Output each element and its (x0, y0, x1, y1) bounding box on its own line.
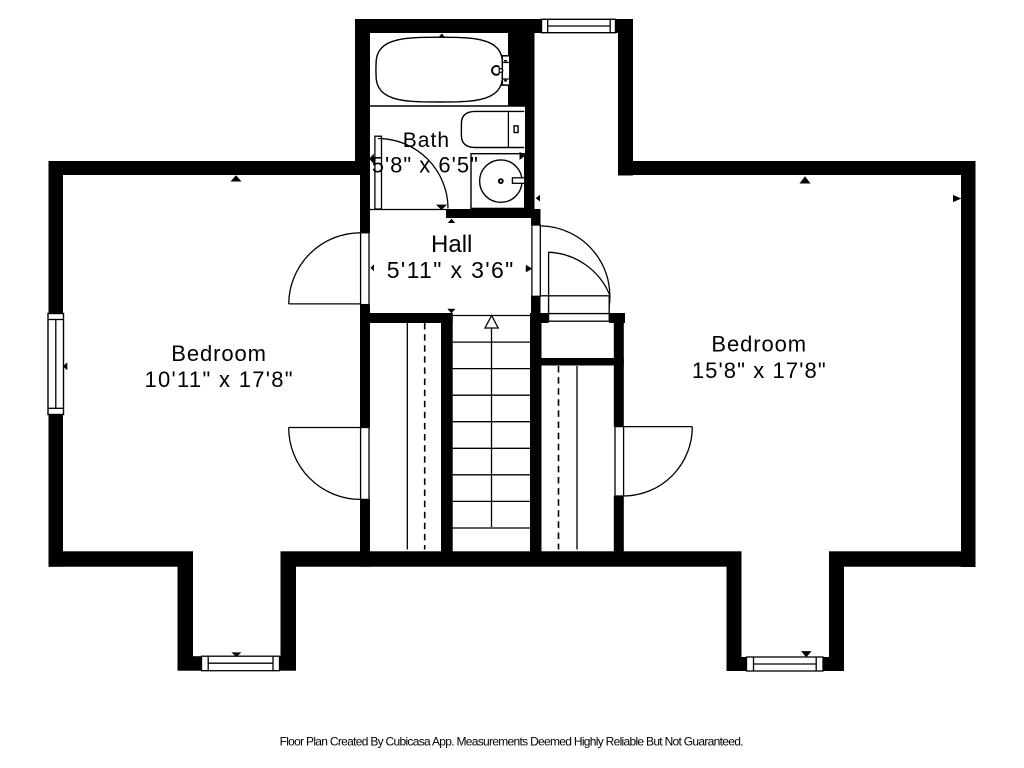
svg-text:15'8" x 17'8": 15'8" x 17'8" (692, 358, 827, 383)
svg-text:Bath: Bath (403, 129, 450, 152)
svg-text:Floor Plan Created By Cubicasa: Floor Plan Created By Cubicasa App. Meas… (280, 735, 744, 749)
svg-text:5'8" x 6'5": 5'8" x 6'5" (372, 153, 479, 178)
svg-text:10'11" x 17'8": 10'11" x 17'8" (144, 367, 293, 392)
svg-text:5'11" x 3'6": 5'11" x 3'6" (387, 257, 515, 283)
svg-text:Bedroom: Bedroom (711, 332, 807, 357)
svg-text:Bedroom: Bedroom (171, 341, 267, 366)
svg-text:Hall: Hall (431, 231, 472, 258)
